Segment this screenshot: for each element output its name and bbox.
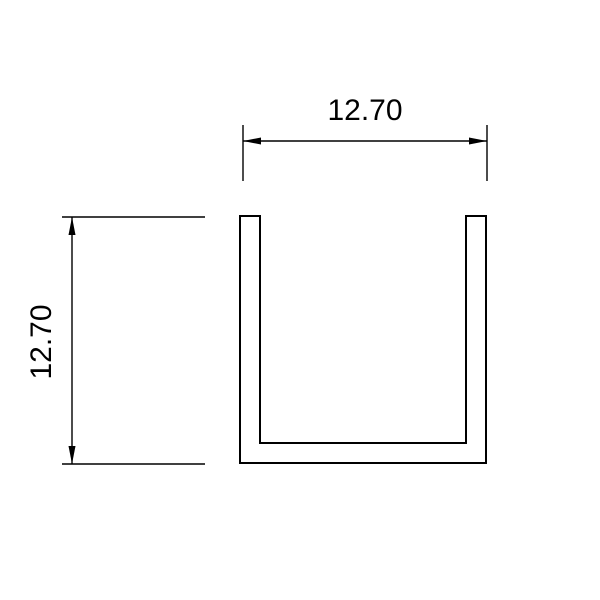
height-dimension-label: 12.70	[25, 304, 58, 379]
cad-drawing-canvas: 12.70 12.70	[0, 0, 600, 600]
width-dimension: 12.70	[243, 94, 487, 181]
width-dimension-label: 12.70	[327, 94, 402, 127]
width-dimension-arrow-right	[469, 138, 487, 145]
u-channel-technical-drawing: 12.70 12.70	[0, 0, 600, 600]
u-channel-outline	[240, 216, 486, 463]
height-dimension-arrow-top	[69, 217, 76, 235]
width-dimension-arrow-left	[243, 138, 261, 145]
height-dimension-arrow-bottom	[69, 446, 76, 464]
height-dimension: 12.70	[25, 217, 205, 464]
